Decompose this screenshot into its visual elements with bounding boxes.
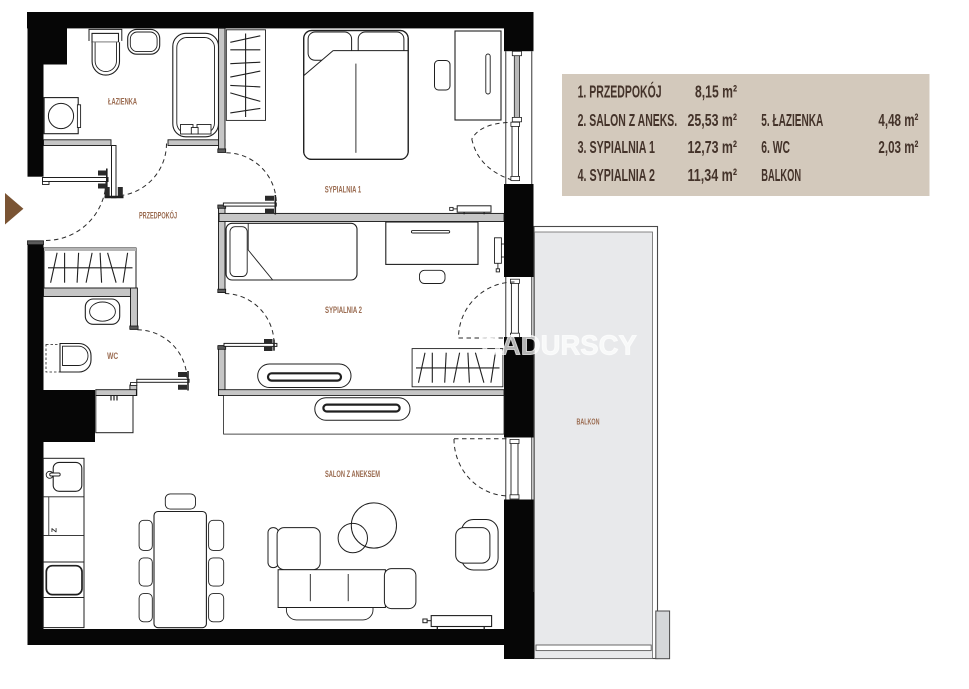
svg-text:BALKON: BALKON: [577, 417, 600, 427]
svg-text:11,34 m²: 11,34 m²: [688, 165, 738, 185]
svg-text:4,48 m²: 4,48 m²: [878, 110, 918, 130]
svg-text:25,53 m²: 25,53 m²: [688, 110, 738, 130]
svg-text:6. WC: 6. WC: [761, 137, 790, 157]
svg-text:Z: Z: [50, 528, 59, 533]
svg-text:ŁAZIENKA: ŁAZIENKA: [108, 97, 137, 108]
svg-text:BALKON: BALKON: [761, 165, 801, 185]
svg-text:BADURSCY: BADURSCY: [481, 330, 637, 361]
svg-text:SYPIALNIA 1: SYPIALNIA 1: [325, 184, 362, 195]
svg-text:12,73 m²: 12,73 m²: [688, 137, 738, 157]
svg-text:1. PRZEDPOKÓJ: 1. PRZEDPOKÓJ: [578, 81, 662, 102]
svg-text:WC: WC: [107, 351, 118, 362]
svg-text:5. ŁAZIENKA: 5. ŁAZIENKA: [761, 110, 823, 130]
svg-text:3. SYPIALNIA 1: 3. SYPIALNIA 1: [578, 137, 656, 157]
svg-text:8,15 m²: 8,15 m²: [695, 82, 737, 102]
svg-text:SYPIALNIA 2: SYPIALNIA 2: [325, 305, 362, 316]
svg-text:PRZEDPOKÓJ: PRZEDPOKÓJ: [139, 210, 177, 222]
svg-text:4. SYPIALNIA 2: 4. SYPIALNIA 2: [578, 165, 656, 185]
svg-text:SALON Z ANEKSEM: SALON Z ANEKSEM: [325, 469, 380, 480]
svg-text:2,03 m²: 2,03 m²: [878, 137, 918, 157]
svg-text:2. SALON Z ANEKS.: 2. SALON Z ANEKS.: [578, 110, 678, 130]
